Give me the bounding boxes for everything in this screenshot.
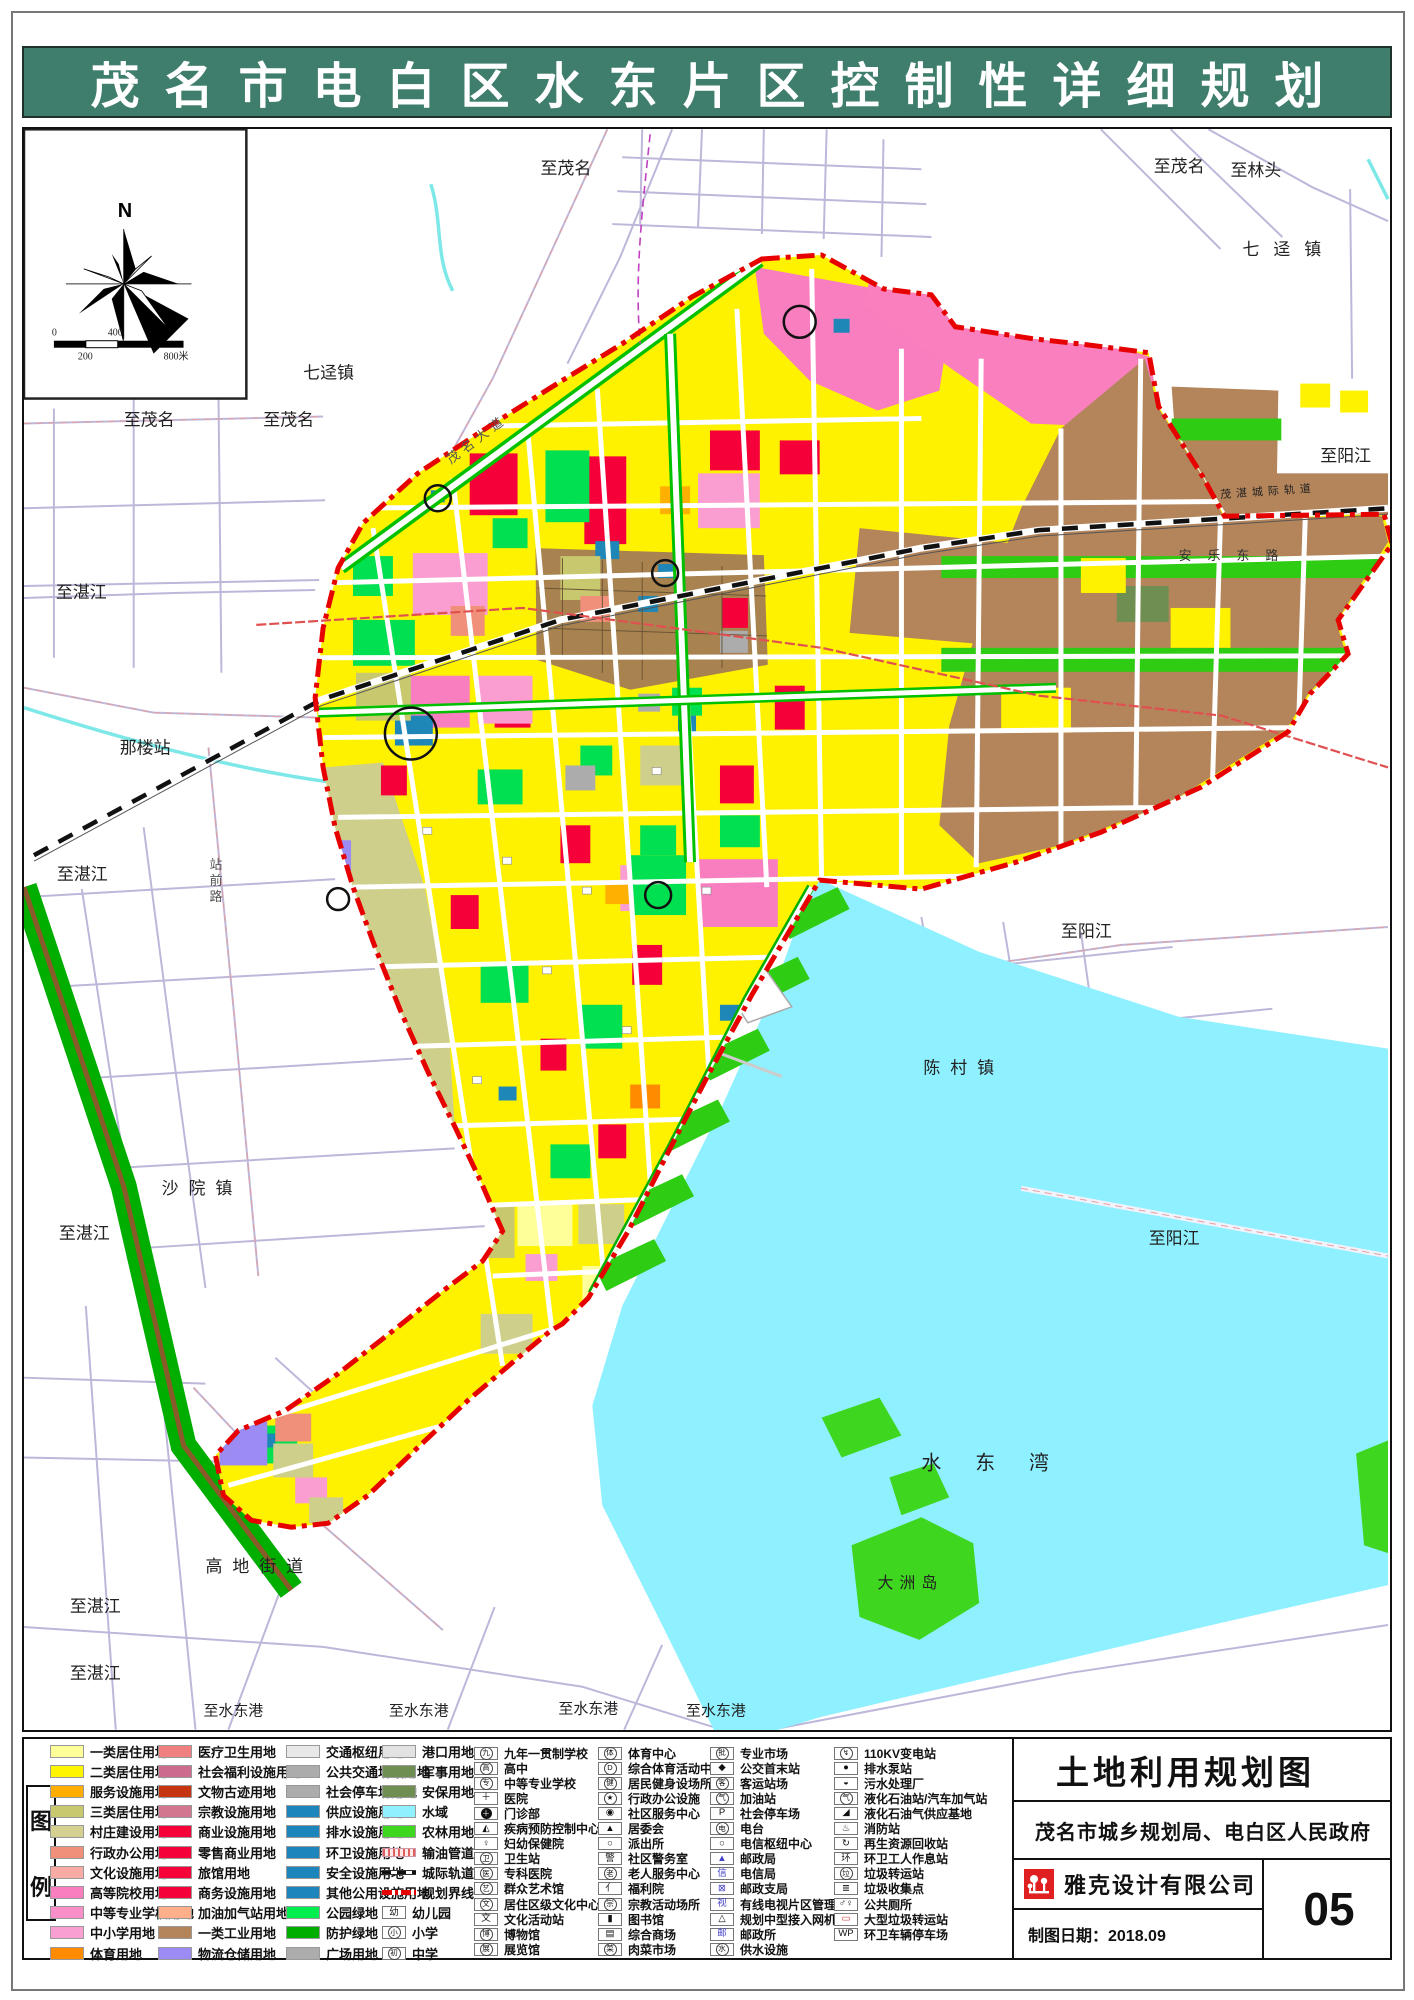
legend-item: 体体育中心 xyxy=(598,1745,676,1761)
legend-item: 博博物馆 xyxy=(474,1926,540,1942)
legend-symbol-box: ◆ xyxy=(710,1762,734,1775)
legend-swatch xyxy=(50,1866,84,1879)
company-name: 雅克设计有限公司 xyxy=(1064,1868,1256,1900)
legend-item: ◢液化石油气供应基地 xyxy=(834,1805,972,1821)
legend-item: 垃垃圾转运站 xyxy=(834,1866,924,1882)
legend-swatch xyxy=(50,1926,84,1939)
legend-item: ◒污水处理厂 xyxy=(834,1775,924,1791)
legend-item: ＋医院 xyxy=(474,1790,528,1806)
agency-row: 茂名市城乡规划局、电白区人民政府 xyxy=(1014,1802,1392,1860)
legend-item: ◭疾病预防控制中心 xyxy=(474,1821,600,1837)
legend-item: ♨消防站 xyxy=(834,1821,900,1837)
legend-symbol-box: ♨ xyxy=(834,1822,858,1835)
legend-symbol-icon: ▲ xyxy=(717,1854,726,1864)
legend-item: 城际轨道 xyxy=(382,1864,474,1880)
legend-symbol-box: ♂♀ xyxy=(834,1898,858,1911)
map-label: 沙院镇 xyxy=(162,1179,243,1198)
legend-symbol-icon: 展 xyxy=(480,1943,493,1956)
legend-symbol-icon: 宗 xyxy=(604,1898,617,1911)
legend-item: ▲邮政局 xyxy=(710,1851,776,1867)
legend-swatch xyxy=(50,1785,84,1798)
legend-symbol-icon: 高 xyxy=(480,1762,493,1775)
north-label: N xyxy=(118,200,132,222)
map-label: 高地街道 xyxy=(205,1557,313,1576)
legend-swatch xyxy=(50,1765,84,1778)
legend-symbol-box: 水 xyxy=(710,1943,734,1956)
legend-item-label: 加油加气站用地 xyxy=(198,1903,289,1922)
legend-item: 零售商业用地 xyxy=(158,1844,276,1860)
legend-item: ○派出所 xyxy=(598,1836,664,1852)
legend-symbol-box: 宗 xyxy=(598,1898,622,1911)
legend-item-label: 医疗卫生用地 xyxy=(198,1742,276,1761)
legend-symbol-box: ○ xyxy=(710,1837,734,1850)
legend-item: 中小学用地 xyxy=(50,1925,155,1941)
legend-symbol-box: 卫 xyxy=(474,1852,498,1865)
map-label: 至水东港 xyxy=(389,1703,449,1720)
legend-item: 二类居住用地 xyxy=(50,1763,168,1779)
legend-item: ＋门诊部 xyxy=(474,1805,540,1821)
legend-symbol-box: 环 xyxy=(834,1852,858,1865)
legend-symbol-box: 文 xyxy=(474,1898,498,1911)
legend-symbol-box: 博 xyxy=(474,1928,498,1941)
legend-swatch xyxy=(286,1785,320,1798)
legend-item-label: 水域 xyxy=(422,1802,448,1821)
legend-symbol-icon: ↻ xyxy=(842,1839,850,1849)
legend-symbol-icon: 信 xyxy=(717,1869,727,1879)
legend-item-label: 肉菜市场 xyxy=(628,1941,676,1958)
legend-swatch xyxy=(286,1745,320,1758)
map-label: 那楼站 xyxy=(120,739,171,758)
legend-symbol-icon: ＋ xyxy=(481,1808,492,1819)
legend-item: 客客运站场 xyxy=(710,1775,788,1791)
legend-item-label: 安保用地 xyxy=(422,1782,474,1801)
legend-item-label: 零售商业用地 xyxy=(198,1843,276,1862)
legend-item: ▲居委会 xyxy=(598,1821,664,1837)
legend-item: 安保用地 xyxy=(382,1783,474,1799)
legend-symbol-box: 电 xyxy=(710,1822,734,1835)
legend-symbol-box: ▤ xyxy=(598,1928,622,1941)
planning-map: N 至茂名至茂名至林头七迳镇至茂名至茂名七迳镇至阳江至湛江那楼站至湛江陈村镇至阳… xyxy=(24,129,1390,1730)
legend-swatch xyxy=(50,1825,84,1838)
legend-swatch xyxy=(158,1947,192,1960)
legend-swatch xyxy=(286,1906,320,1919)
legend-item: 信电信局 xyxy=(710,1866,776,1882)
legend-symbol-icon: 垃 xyxy=(840,1867,853,1880)
legend-swatch xyxy=(286,1866,320,1879)
map-label: 至阳江 xyxy=(1149,1229,1200,1248)
legend-symbol-box: 初 xyxy=(382,1947,406,1960)
legend-symbol-box: 文 xyxy=(474,1913,498,1926)
legend-swatch xyxy=(382,1825,416,1838)
map-label: 0 xyxy=(52,328,57,339)
legend-symbol-box: P xyxy=(710,1807,734,1820)
legend-swatch xyxy=(50,1906,84,1919)
legend-item-label: 服务设施用地 xyxy=(90,1782,168,1801)
legend-item: 医疗卫生用地 xyxy=(158,1743,276,1759)
legend-symbol-box: 小 xyxy=(382,1926,406,1939)
legend-symbol-icon: ○ xyxy=(719,1839,725,1849)
sheet-header: 茂名市电白区水东片区控制性详细规划 xyxy=(22,46,1392,118)
legend-symbol-icon: 亻 xyxy=(605,1884,615,1894)
legend-item: ↻再生资源回收站 xyxy=(834,1836,948,1852)
legend-item: 初中学 xyxy=(382,1945,438,1961)
legend-item-label: 高等院校用地 xyxy=(90,1883,168,1902)
map-label: 至水东港 xyxy=(203,1703,263,1720)
legend-item: 气加油站 xyxy=(710,1790,776,1806)
legend-item: 水供水设施 xyxy=(710,1941,788,1957)
legend-item-label: 规划界线 xyxy=(422,1883,474,1902)
legend-swatch xyxy=(158,1886,192,1899)
legend-item: 老老人服务中心 xyxy=(598,1866,700,1882)
legend-symbol-box: 健 xyxy=(598,1777,622,1790)
legend-symbol-icon: 气 xyxy=(716,1792,729,1805)
legend-item-label: 旅馆用地 xyxy=(198,1863,250,1882)
legend-symbol-icon: 文 xyxy=(480,1898,493,1911)
legend-swatch xyxy=(158,1765,192,1778)
map-label: 站前路 xyxy=(209,857,222,904)
legend-item-label: 中学 xyxy=(412,1944,438,1963)
legend-item-label: 文化设施用地 xyxy=(90,1863,168,1882)
legend-symbol-box: △ xyxy=(710,1913,734,1926)
legend-item: 宗宗教活动场所 xyxy=(598,1896,700,1912)
legend-item: 农林用地 xyxy=(382,1824,474,1840)
legend-item: 服务设施用地 xyxy=(50,1783,168,1799)
legend-swatch xyxy=(50,1846,84,1859)
legend-item: ★行政办公设施 xyxy=(598,1790,700,1806)
legend-item: 输油管道 xyxy=(382,1844,474,1860)
map-label: 至湛江 xyxy=(57,865,108,884)
map-label: 至水东港 xyxy=(686,1703,746,1720)
legend-symbol-icon: 气 xyxy=(840,1792,853,1805)
legend-item: 艺群众艺术馆 xyxy=(474,1881,564,1897)
legend-item: 旅馆用地 xyxy=(158,1864,250,1880)
plan-sheet: 茂名市电白区水东片区控制性详细规划 xyxy=(0,0,1414,2000)
legend-item-label: 幼儿园 xyxy=(412,1903,451,1922)
drawing-title-row: 土地利用规划图 xyxy=(1014,1739,1392,1802)
legend-symbol-icon: ♀ xyxy=(482,1839,489,1849)
legend-symbol-box: ◭ xyxy=(474,1822,498,1835)
title-block: 土地利用规划图 茂名市城乡规划局、电白区人民政府 xyxy=(1012,1739,1392,1958)
map-label: 至湛江 xyxy=(59,1224,110,1243)
legend-symbol-box: 展 xyxy=(474,1943,498,1956)
map-container: N 至茂名至茂名至林头七迳镇至茂名至茂名七迳镇至阳江至湛江那楼站至湛江陈村镇至阳… xyxy=(22,127,1392,1732)
legend-item: 一类居住用地 xyxy=(50,1743,168,1759)
legend-symbol-icon: ★ xyxy=(604,1792,617,1805)
legend-item: 邮邮政所 xyxy=(710,1926,776,1942)
legend-symbol-icon: 视 xyxy=(717,1899,727,1909)
legend-item: 社会福利设施用地 xyxy=(158,1763,302,1779)
legend-symbol-box: 气 xyxy=(710,1792,734,1805)
map-label: 至阳江 xyxy=(1061,922,1112,941)
legend-symbol-icon: 小 xyxy=(388,1926,401,1939)
legend-symbol-box: ● xyxy=(834,1762,858,1775)
map-label: 至林头 xyxy=(1230,161,1281,180)
legend-item: ⊠邮政支局 xyxy=(710,1881,788,1897)
legend-symbol-box: 气 xyxy=(834,1792,858,1805)
legend-symbol-box: ★ xyxy=(598,1792,622,1805)
legend-symbol-box: 医 xyxy=(474,1867,498,1880)
legend-symbol-box: ＋ xyxy=(474,1792,498,1805)
legend-symbol-box: ▭ xyxy=(834,1913,858,1926)
legend-item: 物流仓储用地 xyxy=(158,1945,276,1961)
company-logo-icon xyxy=(1024,1869,1054,1899)
legend-swatch xyxy=(382,1805,416,1818)
legend-item: ♂♀公共厕所 xyxy=(834,1896,912,1912)
legend-symbol-box: 亻 xyxy=(598,1882,622,1895)
legend-symbol-icon: P xyxy=(719,1808,725,1818)
map-label: 400 xyxy=(108,328,123,339)
legend-item-label: 广场用地 xyxy=(326,1944,378,1963)
legend-item: 展展览馆 xyxy=(474,1941,540,1957)
legend-symbol-box: 幼 xyxy=(382,1906,406,1919)
legend-item: 九九年一贯制学校 xyxy=(474,1745,588,1761)
legend-symbol-icon: ◉ xyxy=(606,1808,614,1818)
legend-char-li: 例 xyxy=(30,1870,52,1902)
legend-symbol-box: ▲ xyxy=(710,1852,734,1865)
legend-symbol-icon: ◆ xyxy=(718,1763,725,1773)
legend-item-label: 商务设施用地 xyxy=(198,1883,276,1902)
legend-symbol-box: ⊠ xyxy=(710,1882,734,1895)
drawing-title: 土地利用规划图 xyxy=(1056,1746,1315,1794)
legend-swatch xyxy=(382,1765,416,1778)
legend-symbol-icon: ○ xyxy=(607,1839,613,1849)
legend-symbol-icon: ◢ xyxy=(842,1808,849,1818)
legend-symbol-icon: 警 xyxy=(605,1854,615,1864)
legend-item-label: 中小学用地 xyxy=(90,1923,155,1942)
legend-item-label: 商业设施用地 xyxy=(198,1822,276,1841)
legend-symbol-icon: △ xyxy=(718,1914,725,1924)
legend-swatch xyxy=(158,1846,192,1859)
legend-symbol-icon: ▮ xyxy=(607,1914,612,1924)
legend-item-label: 供水设施 xyxy=(740,1941,788,1958)
legend-item: 高高中 xyxy=(474,1760,528,1776)
legend-item: △规划中型接入网机房 xyxy=(710,1911,848,1927)
legend-item: 宗教设施用地 xyxy=(158,1804,276,1820)
legend-item-label: 体育用地 xyxy=(90,1944,142,1963)
legend-item: 视有线电视片区管理站 xyxy=(710,1896,848,1912)
sheet-title: 茂名市电白区水东片区控制性详细规划 xyxy=(65,47,1348,118)
legend-swatch xyxy=(286,1947,320,1960)
legend-symbol-box: 艺 xyxy=(474,1882,498,1895)
legend-symbol-icon: 九 xyxy=(480,1747,493,1760)
company-row: 雅克设计有限公司 xyxy=(1014,1860,1262,1910)
legend-item: 幼幼儿园 xyxy=(382,1905,451,1921)
legend-symbol-box: 体 xyxy=(598,1747,622,1760)
legend-symbol-icon: ≣ xyxy=(842,1884,850,1894)
map-label: 至湛江 xyxy=(70,1597,121,1616)
page-number-cell: 05 xyxy=(1264,1860,1394,1958)
legend-symbol-box: ◢ xyxy=(834,1807,858,1820)
legend-symbol-icon: 电 xyxy=(716,1822,729,1835)
legend-item-label: 军事用地 xyxy=(422,1762,474,1781)
map-label: 安乐东路 xyxy=(1179,548,1295,563)
legend-symbol-icon: ↯ xyxy=(840,1747,853,1760)
agency-name: 茂名市城乡规划局、电白区人民政府 xyxy=(1035,1816,1371,1845)
legend-symbol-icon: ● xyxy=(843,1763,849,1773)
legend-symbol-icon: 体 xyxy=(604,1747,617,1760)
legend-item: 电电台 xyxy=(710,1821,764,1837)
legend-item: 文化设施用地 xyxy=(50,1864,168,1880)
legend-symbol-icon: ▲ xyxy=(605,1824,614,1834)
legend-item-label: 行政办公用地 xyxy=(90,1843,168,1862)
legend-swatch xyxy=(158,1866,192,1879)
legend-item: 广场用地 xyxy=(286,1945,378,1961)
legend-item: P社会停车场 xyxy=(710,1805,800,1821)
legend-item: WP环卫车辆停车场 xyxy=(834,1926,948,1942)
compass-box: N xyxy=(24,129,246,398)
legend-item: 商业设施用地 xyxy=(158,1824,276,1840)
legend-item: 医专科医院 xyxy=(474,1866,552,1882)
legend-swatch xyxy=(382,1785,416,1798)
legend-item: 文物古迹用地 xyxy=(158,1783,276,1799)
legend-symbol-box: 邮 xyxy=(710,1928,734,1941)
legend-symbol-box: 信 xyxy=(710,1867,734,1880)
legend-symbol-box: 专 xyxy=(474,1777,498,1790)
legend-item: ↯110KV变电站 xyxy=(834,1745,936,1761)
legend-item-label: 防护绿地 xyxy=(326,1923,378,1942)
legend-swatch xyxy=(158,1906,192,1919)
legend-symbol-box: 老 xyxy=(598,1867,622,1880)
company-block: 雅克设计有限公司 制图日期：2018.09 xyxy=(1014,1860,1264,1958)
map-label: 陈村镇 xyxy=(923,1059,1004,1078)
legend-item: 菜肉菜市场 xyxy=(598,1941,676,1957)
scale-bar xyxy=(54,341,184,348)
legend-symbol-icon: WP xyxy=(838,1929,853,1939)
legend-swatch xyxy=(50,1886,84,1899)
legend-symbol-icon: 幼 xyxy=(389,1908,399,1918)
legend-item: 水域 xyxy=(382,1804,448,1820)
legend-symbol-icon: D xyxy=(604,1762,617,1775)
map-label: 至水东港 xyxy=(558,1701,618,1718)
legend-symbol-icon: 健 xyxy=(604,1777,617,1790)
legend-symbol-icon: ♂♀ xyxy=(839,1899,853,1909)
legend-item: 商务设施用地 xyxy=(158,1884,276,1900)
legend-symbol-icon: 卫 xyxy=(480,1852,493,1865)
legend-item-label: 宗教设施用地 xyxy=(198,1802,276,1821)
legend-item: 批专业市场 xyxy=(710,1745,788,1761)
legend-item: ●排水泵站 xyxy=(834,1760,912,1776)
legend-swatch xyxy=(382,1745,416,1758)
legend-item-label: 三类居住用地 xyxy=(90,1802,168,1821)
legend-symbol-box: 菜 xyxy=(598,1943,622,1956)
legend-item: 军事用地 xyxy=(382,1763,474,1779)
legend-swatch xyxy=(158,1745,192,1758)
legend-item: 加油加气站用地 xyxy=(158,1905,289,1921)
legend-item-label: 村庄建设用地 xyxy=(90,1822,168,1841)
legend-swatch xyxy=(158,1805,192,1818)
legend-symbol-box: ◒ xyxy=(834,1777,858,1790)
map-label: 大洲岛 xyxy=(878,1574,944,1592)
legend-item: ◉社区服务中心 xyxy=(598,1805,700,1821)
legend-symbol-box: ↯ xyxy=(834,1747,858,1760)
legend-symbol-icon: 初 xyxy=(388,1947,401,1960)
legend-swatch xyxy=(158,1785,192,1798)
legend-item-label: 二类居住用地 xyxy=(90,1762,168,1781)
legend-item: ≣垃圾收集点 xyxy=(834,1881,924,1897)
line-rail-sample xyxy=(382,1870,416,1875)
legend-symbol-box: 垃 xyxy=(834,1867,858,1880)
legend-item: 气液化石油站/汽车加气站 xyxy=(834,1790,987,1806)
map-label: 至茂名 xyxy=(263,410,314,429)
legend-char-tu: 图 xyxy=(30,1804,52,1836)
map-label: 七迳镇 xyxy=(303,364,354,383)
map-label: 至茂名 xyxy=(124,410,175,429)
map-label: 至茂名 xyxy=(540,159,591,178)
legend-symbol-icon: ♨ xyxy=(842,1824,851,1834)
legend-symbol-box: ▲ xyxy=(598,1822,622,1835)
map-label: 至湛江 xyxy=(70,1664,121,1683)
legend-item: 一类工业用地 xyxy=(158,1925,276,1941)
legend-symbol-icon: ＋ xyxy=(481,1793,491,1803)
legend-item: 亻福利院 xyxy=(598,1881,664,1897)
legend-item: 文居住区级文化中心 xyxy=(474,1896,600,1912)
legend-symbol-icon: 水 xyxy=(716,1943,729,1956)
legend-item: 卫卫生站 xyxy=(474,1851,540,1867)
legend-symbol-icon: 邮 xyxy=(717,1929,727,1939)
legend-item: ▤综合商场 xyxy=(598,1926,676,1942)
map-label: 水东湾 xyxy=(921,1451,1083,1474)
legend-item: D综合体育活动中心 xyxy=(598,1760,724,1776)
map-label: 至茂名 xyxy=(1154,157,1205,176)
legend-item: 小小学 xyxy=(382,1925,438,1941)
legend-symbol-icon: ▭ xyxy=(842,1914,851,1924)
legend-item-label: 输油管道 xyxy=(422,1843,474,1862)
legend-symbol-icon: ⊠ xyxy=(718,1884,726,1894)
legend-swatch xyxy=(286,1825,320,1838)
legend-symbol-box: ▮ xyxy=(598,1913,622,1926)
legend-item-label: 一类居住用地 xyxy=(90,1742,168,1761)
legend-symbol-icon: 医 xyxy=(480,1867,493,1880)
legend-swatch xyxy=(286,1805,320,1818)
legend-symbol-box: 九 xyxy=(474,1747,498,1760)
legend-item: 三类居住用地 xyxy=(50,1804,168,1820)
legend-symbol-icon: ▤ xyxy=(606,1929,615,1939)
legend-swatch xyxy=(50,1745,84,1758)
legend-item: 村庄建设用地 xyxy=(50,1824,168,1840)
legend-item-label: 城际轨道 xyxy=(422,1863,474,1882)
map-label: 800米 xyxy=(164,350,189,363)
legend-symbol-box: WP xyxy=(834,1928,858,1941)
legend-symbol-box: 批 xyxy=(710,1747,734,1760)
legend-item-label: 小学 xyxy=(412,1923,438,1942)
legend-item: 高等院校用地 xyxy=(50,1884,168,1900)
legend-item: 警社区警务室 xyxy=(598,1851,688,1867)
legend-item: ○电信枢纽中心 xyxy=(710,1836,812,1852)
legend-symbol-box: 视 xyxy=(710,1898,734,1911)
line-boundary-sample xyxy=(382,1890,416,1895)
legend-swatch xyxy=(286,1846,320,1859)
legend-item: 公园绿地 xyxy=(286,1905,378,1921)
legend-swatch xyxy=(158,1926,192,1939)
legend-panel: 图 例 一类居住用地二类居住用地服务设施用地三类居住用地村庄建设用地行政办公用地… xyxy=(22,1737,1392,1960)
legend-swatch xyxy=(50,1805,84,1818)
legend-symbol-icon: ◒ xyxy=(843,1778,849,1788)
legend-item: 港口用地 xyxy=(382,1743,474,1759)
legend-symbol-box: ♀ xyxy=(474,1837,498,1850)
legend-symbol-icon: 菜 xyxy=(604,1943,617,1956)
legend-item-label: 公园绿地 xyxy=(326,1903,378,1922)
legend-item: ▭大型垃圾转运站 xyxy=(834,1911,948,1927)
legend-swatch xyxy=(158,1825,192,1838)
legend-symbol-box: D xyxy=(598,1762,622,1775)
legend-item: 体育用地 xyxy=(50,1945,142,1961)
legend-symbol-icon: 博 xyxy=(480,1928,493,1941)
line-oil-sample xyxy=(382,1848,416,1857)
date-row: 制图日期：2018.09 xyxy=(1014,1910,1262,1958)
legend-symbol-icon: 专 xyxy=(480,1777,493,1790)
legend-item-label: 港口用地 xyxy=(422,1742,474,1761)
legend-item-label: 文物古迹用地 xyxy=(198,1782,276,1801)
